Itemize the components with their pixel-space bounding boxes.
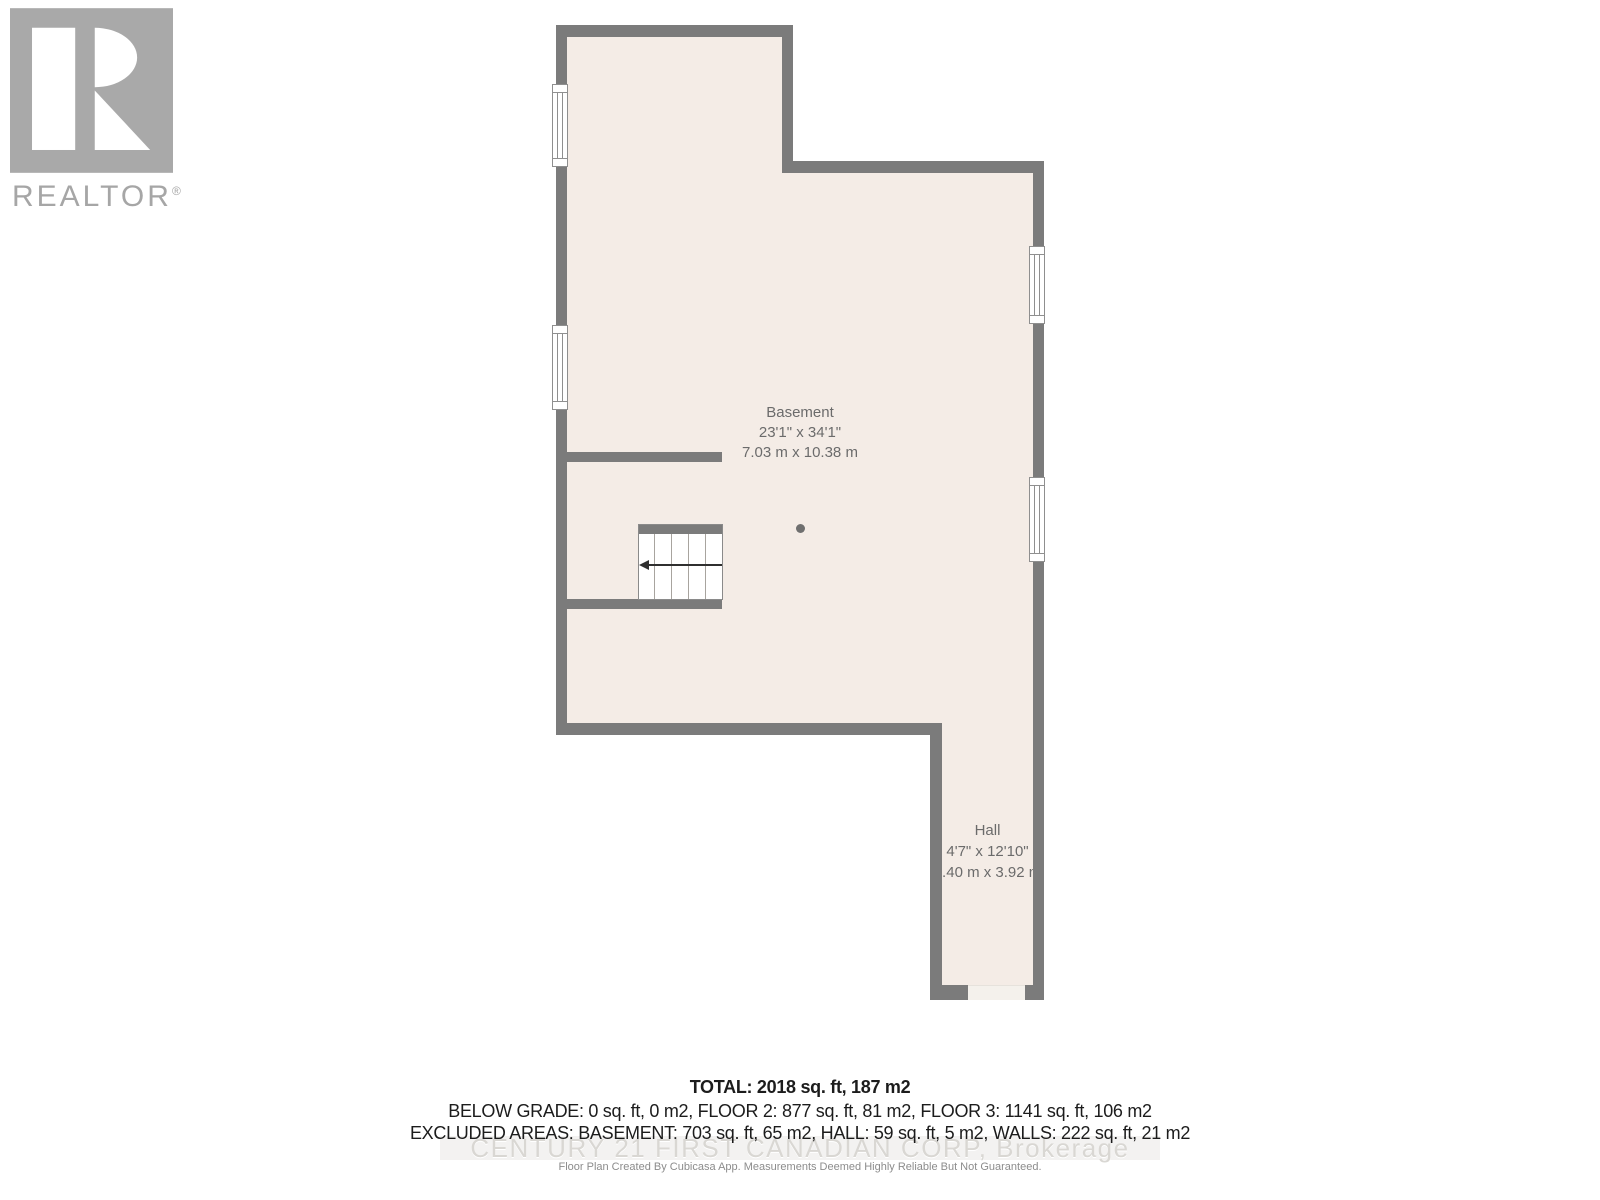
- wall-segment: [556, 25, 793, 37]
- stair-tread-line: [654, 534, 655, 599]
- room-name: Basement: [567, 403, 1033, 423]
- window-pane-line: [1039, 255, 1040, 315]
- window-pane-line: [557, 93, 558, 158]
- window-icon: [1029, 477, 1045, 562]
- wall-segment: [782, 161, 1044, 173]
- stair-tread-line: [688, 534, 689, 599]
- room-dims-imperial: 23'1" x 34'1": [567, 423, 1033, 443]
- total-area-line: TOTAL: 2018 sq. ft, 187 m2: [0, 1077, 1600, 1098]
- room-dims-metric: 7.03 m x 10.38 m: [567, 443, 1033, 463]
- window-frame-line: [1030, 254, 1044, 255]
- wall-segment: [930, 985, 968, 1000]
- wall-segment: [930, 723, 942, 1000]
- wall-segment: [782, 25, 793, 173]
- realtor-wordmark: REALTOR®: [12, 180, 181, 214]
- stairs-top-wall: [639, 525, 722, 534]
- room-name: Hall: [942, 820, 1033, 841]
- support-column-dot: [796, 524, 805, 533]
- floor-areas-line: BELOW GRADE: 0 sq. ft, 0 m2, FLOOR 2: 87…: [0, 1101, 1600, 1122]
- realtor-block-r-icon: [10, 8, 173, 173]
- window-pane-line: [1034, 486, 1035, 553]
- stair-tread-line: [671, 534, 672, 599]
- stair-direction-arrowhead-icon: [639, 560, 649, 570]
- excluded-areas-line: EXCLUDED AREAS: BASEMENT: 703 sq. ft, 65…: [0, 1123, 1600, 1144]
- room-label-basement: Basement 23'1" x 34'1" 7.03 m x 10.38 m: [567, 403, 1033, 463]
- window-frame-line: [1030, 553, 1044, 554]
- stairs-icon: [638, 524, 723, 600]
- wall-segment: [1025, 985, 1044, 1000]
- door-opening: [968, 985, 1025, 1000]
- realtor-logo: REALTOR®: [10, 8, 190, 178]
- stair-tread-line: [705, 534, 706, 599]
- window-pane-line: [562, 93, 563, 158]
- window-pane-line: [562, 334, 563, 401]
- window-frame-line: [1030, 315, 1044, 316]
- window-frame-line: [553, 401, 567, 402]
- window-icon: [1029, 246, 1045, 324]
- window-frame-line: [553, 333, 567, 334]
- basement-floor: [567, 37, 782, 723]
- room-label-hall: Hall 4'7" x 12'10" 1.40 m x 3.92 m: [942, 820, 1033, 883]
- room-dims-metric: 1.40 m x 3.92 m: [942, 862, 1033, 883]
- interior-wall-segment: [567, 599, 722, 609]
- hall-room-area: Hall 4'7" x 12'10" 1.40 m x 3.92 m: [942, 723, 1033, 985]
- window-icon: [552, 325, 568, 410]
- floorplan-page: REALTOR® Basement 23'1" x 34': [0, 0, 1600, 1200]
- room-dims-imperial: 4'7" x 12'10": [942, 841, 1033, 862]
- window-frame-line: [553, 92, 567, 93]
- registered-trademark-icon: ®: [172, 184, 181, 198]
- window-pane-line: [1034, 255, 1035, 315]
- window-icon: [552, 84, 568, 167]
- stair-direction-arrow: [648, 564, 722, 566]
- window-frame-line: [553, 158, 567, 159]
- window-frame-line: [1030, 485, 1044, 486]
- window-pane-line: [557, 334, 558, 401]
- window-pane-line: [1039, 486, 1040, 553]
- disclaimer-text: Floor Plan Created By Cubicasa App. Meas…: [0, 1161, 1600, 1173]
- wall-segment: [556, 723, 942, 735]
